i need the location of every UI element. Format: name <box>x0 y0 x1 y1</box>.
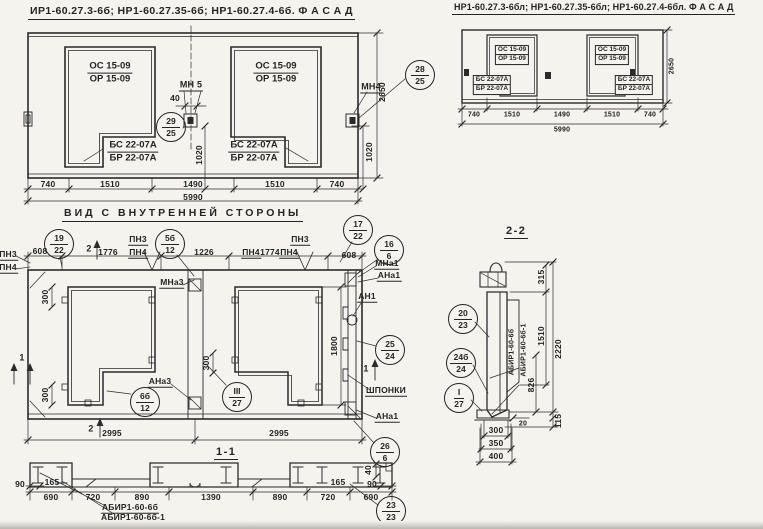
sheet-number: 22 <box>54 245 63 255</box>
dim-890: 890 <box>135 493 150 502</box>
dim-20: 20 <box>519 421 527 428</box>
anchor-label-ana1: АНа1 <box>375 412 400 423</box>
dim-720: 720 <box>321 493 336 502</box>
sill-mark-2: БС 22-07АБР 22-07А <box>228 140 279 165</box>
lintel-label-pn3: ПН3 <box>128 235 148 246</box>
anchor-label-ana3: АНа3 <box>148 377 173 388</box>
sill-block-mark-alt: БР 22-07А <box>228 153 279 165</box>
embed-label-mn5: МН 5 <box>179 81 203 92</box>
dim-1490: 1490 <box>554 112 570 119</box>
dim-300: 300 <box>202 356 211 371</box>
detail-number: 20 <box>454 308 471 319</box>
sill-mark-1: БС 22-07АБР 22-07А <box>107 140 158 165</box>
sill-block-mark: БС 22-07А <box>107 140 158 153</box>
detail-number: 24б <box>450 352 473 363</box>
sheet-number: 12 <box>140 403 149 413</box>
detail-marker-29-25: 2925 <box>156 112 186 142</box>
opening-mark-2: ОС 15-09ОР 15-09 <box>253 61 298 86</box>
dim-1774: 1774 <box>260 248 280 257</box>
lintel-mark-alt: ОР 15-09 <box>253 74 298 86</box>
sheet-number: 6 <box>387 251 392 261</box>
dim-1226: 1226 <box>194 248 214 257</box>
title-facade: ИР1-60.27.3-6б; НР1-60.27.35-6б; НР1-60.… <box>28 6 355 20</box>
dim-608: 608 <box>342 251 357 260</box>
dim-350: 350 <box>489 439 504 448</box>
section-mark-1: 1 <box>363 365 368 374</box>
dim-1020: 1020 <box>195 145 204 165</box>
sheet-number: 27 <box>454 399 463 409</box>
lintel-label-pn4: ПН4 <box>128 248 148 259</box>
dim-720: 720 <box>86 493 101 502</box>
title-section-1-1: 1-1 <box>214 446 238 460</box>
title-section-2-2: 2-2 <box>504 225 528 239</box>
product-mark-label-alt: АБИР1-60-6б-1 <box>521 323 528 376</box>
dim-740: 740 <box>330 180 345 189</box>
sill-block-mark-alt: БР 22-07А <box>107 153 158 165</box>
dim-1776: 1776 <box>98 248 118 257</box>
opening-mark-2r: ОС 15-09ОР 15-09 <box>595 45 629 65</box>
detail-marker-26-6: 266 <box>370 437 400 467</box>
keys-label-shponki: ШПОНКИ <box>365 386 407 397</box>
section-mark-2: 2 <box>88 425 93 434</box>
detail-number: 25 <box>381 339 398 350</box>
detail-marker-24b-24: 24б24 <box>446 348 476 378</box>
dim-2995: 2995 <box>269 429 289 438</box>
dim-740: 740 <box>644 112 656 119</box>
dim-690: 690 <box>364 493 379 502</box>
dim-165: 165 <box>45 478 60 487</box>
detail-number: 19 <box>50 233 67 244</box>
lintel-label-pn4: ПН4 <box>241 248 261 259</box>
dim-90: 90 <box>367 480 377 489</box>
lintel-mark: ОС 15-09 <box>87 61 132 74</box>
lintel-mark-alt: ОР 15-09 <box>496 56 528 64</box>
detail-number: I <box>454 387 464 398</box>
detail-marker-iii-27: III27 <box>222 382 252 412</box>
sill-block-mark-alt: БР 22-07А <box>474 86 510 94</box>
title-inner-view: ВИД С ВНУТРЕННЕЙ СТОРОНЫ <box>62 208 303 222</box>
sheet-number: 22 <box>353 231 362 241</box>
dim-826: 826 <box>527 378 536 393</box>
detail-number: III <box>229 386 244 397</box>
detail-marker-28-25: 2825 <box>405 60 435 90</box>
detail-number: 6б <box>136 391 154 402</box>
sheet-number: 23 <box>458 320 467 330</box>
sill-mark-2r: БС 22-07АБР 22-07А <box>615 75 653 95</box>
opening-mark-1: ОС 15-09ОР 15-09 <box>87 61 132 86</box>
title-facade-left-version: НР1-60.27.3-6бл; НР1-60.27.35-6бл; НР1-6… <box>452 3 735 15</box>
dim-165: 165 <box>331 478 346 487</box>
detail-number: 23 <box>382 500 399 511</box>
detail-number: 29 <box>162 116 179 127</box>
dim-690: 690 <box>44 493 59 502</box>
detail-marker-25-24: 2524 <box>375 335 405 365</box>
dim-1510: 1510 <box>100 180 120 189</box>
drawing-sheet: ИР1-60.27.3-6б; НР1-60.27.35-6б; НР1-60.… <box>0 0 763 529</box>
dim-1510: 1510 <box>537 326 546 346</box>
lintel-mark: ОС 15-09 <box>496 46 528 55</box>
lintel-label-pn3: ПН3 <box>0 250 18 261</box>
dim-40: 40 <box>364 465 373 475</box>
sheet-number: 25 <box>415 76 424 86</box>
detail-marker-5b-12: 5б12 <box>155 229 185 259</box>
dim-1510: 1510 <box>265 180 285 189</box>
anchor-label-an1: АН1 <box>357 292 377 303</box>
sheet-number: 24 <box>456 364 465 374</box>
lintel-mark-alt: ОР 15-09 <box>596 56 628 64</box>
opening-mark-1r: ОС 15-09ОР 15-09 <box>495 45 529 65</box>
sheet-number: 12 <box>165 245 174 255</box>
section-mark-2: 2 <box>86 245 91 254</box>
detail-number: 28 <box>411 64 428 75</box>
sill-mark-1r: БС 22-07АБР 22-07А <box>473 75 511 95</box>
detail-marker-17-22: 1722 <box>343 215 373 245</box>
dim-740: 740 <box>41 180 56 189</box>
dim-2995: 2995 <box>102 429 122 438</box>
dim-40: 40 <box>170 94 180 103</box>
dim-115: 115 <box>554 414 563 428</box>
sheet-number: 24 <box>385 351 394 361</box>
dim-90: 90 <box>15 480 25 489</box>
detail-marker-6b-12: 6б12 <box>130 387 160 417</box>
dim-740: 740 <box>468 112 480 119</box>
dim-5990: 5990 <box>183 193 203 202</box>
dim-1510: 1510 <box>604 112 620 119</box>
dim-1020: 1020 <box>365 142 374 162</box>
sheet-number: 27 <box>232 398 241 408</box>
dim-5990: 5990 <box>554 127 570 134</box>
dim-300: 300 <box>41 290 50 305</box>
detail-number: 17 <box>349 219 366 230</box>
dim-1490: 1490 <box>183 180 203 189</box>
lintel-label-pn4: ПН4 <box>0 263 18 274</box>
dim-2220: 2220 <box>554 339 563 359</box>
dim-2650: 2650 <box>378 82 387 102</box>
detail-number: 16 <box>380 239 397 250</box>
dim-400: 400 <box>489 452 504 461</box>
lintel-mark: ОС 15-09 <box>596 46 628 55</box>
dim-890: 890 <box>273 493 288 502</box>
lintel-mark: ОС 15-09 <box>253 61 298 74</box>
product-mark-label: АБИР1-60-6б <box>509 329 516 376</box>
sill-block-mark: БС 22-07А <box>474 76 510 85</box>
detail-marker-16-6: 166 <box>374 235 404 265</box>
dim-1800: 1800 <box>330 336 339 356</box>
lintel-label-pn3: ПН3 <box>290 235 310 246</box>
anchor-label-ana1: АНа1 <box>377 271 402 282</box>
dim-315: 315 <box>537 270 546 285</box>
dim-2650: 2650 <box>669 58 676 74</box>
sheet-number: 6 <box>383 453 388 463</box>
dim-300: 300 <box>489 426 504 435</box>
section-mark-1: 1 <box>19 354 24 363</box>
detail-marker-i-27: I27 <box>444 383 474 413</box>
dim-1390: 1390 <box>201 493 221 502</box>
detail-marker-20-23: 2023 <box>448 304 478 334</box>
sill-block-mark: БС 22-07А <box>228 140 279 153</box>
detail-number: 26 <box>376 441 393 452</box>
sheet-number: 25 <box>166 128 175 138</box>
lintel-mark-alt: ОР 15-09 <box>87 74 132 86</box>
lintel-label-pn4: ПН4 <box>279 248 299 259</box>
detail-number: 5б <box>161 233 179 244</box>
detail-marker-19-22: 1922 <box>44 229 74 259</box>
dim-300: 300 <box>41 388 50 403</box>
sill-block-mark: БС 22-07А <box>616 76 652 85</box>
embed-label-mna3: МНа3 <box>159 278 184 289</box>
scan-edge <box>0 521 763 529</box>
sill-block-mark-alt: БР 22-07А <box>616 86 652 94</box>
dim-1510: 1510 <box>504 112 520 119</box>
